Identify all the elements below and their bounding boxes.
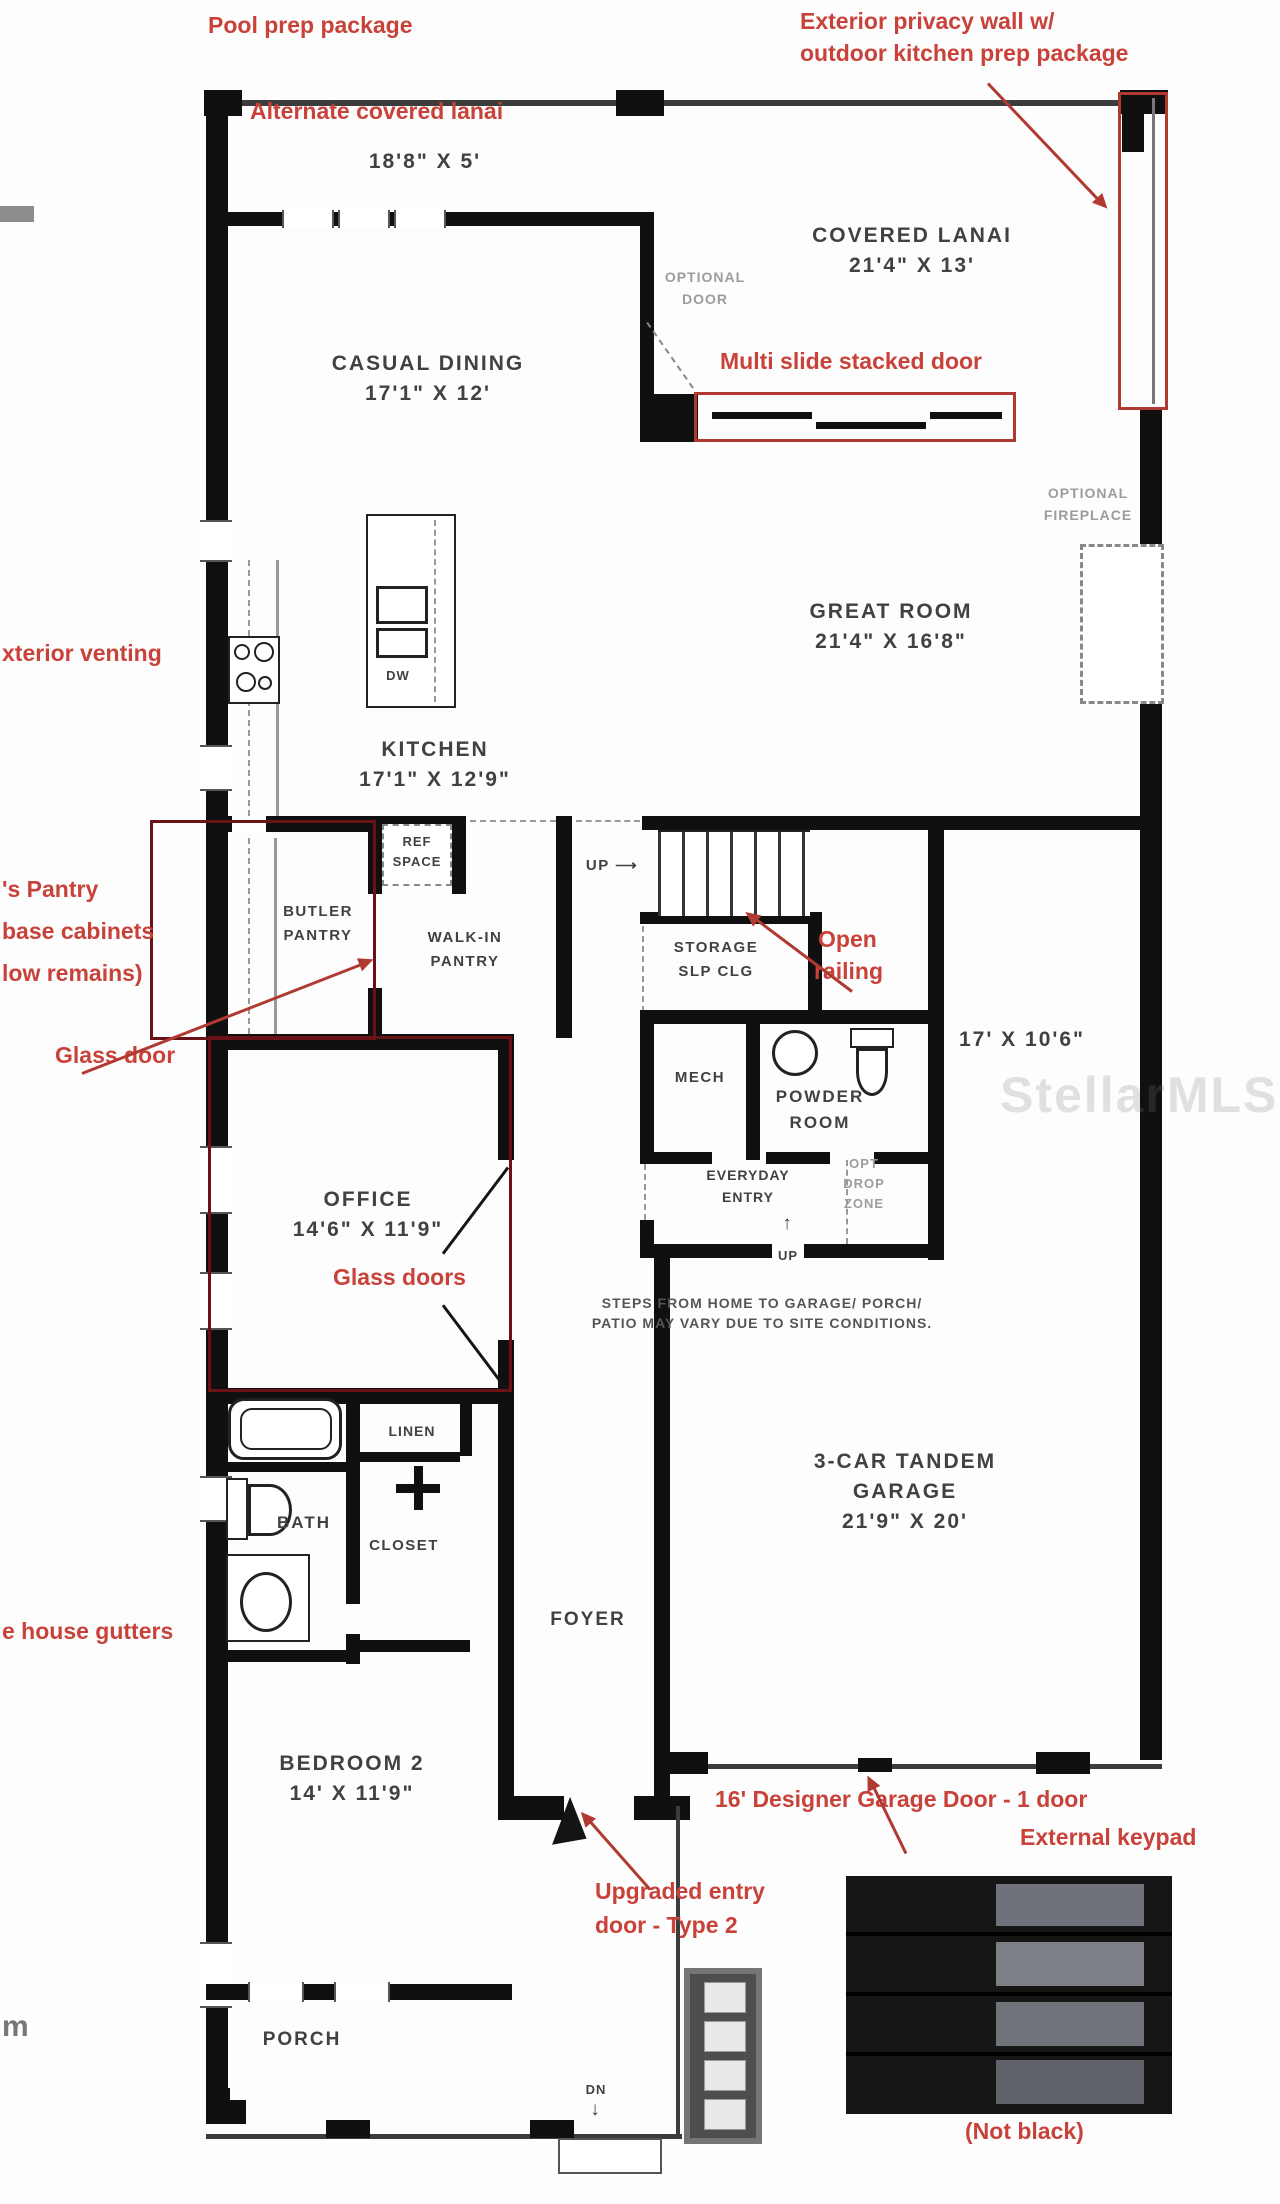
- wall: [804, 1244, 944, 1258]
- room-label-powder-1: POWDER: [776, 1086, 865, 1108]
- garage-window: [996, 1942, 1144, 1986]
- wall: [346, 1388, 360, 1604]
- entry-door-photo: [684, 1968, 762, 2144]
- wall: [654, 1250, 670, 1810]
- annotation-glass-door: Glass door: [55, 1042, 175, 1070]
- wall: [746, 1024, 760, 1160]
- wall: [206, 1650, 358, 1662]
- window: [200, 520, 232, 562]
- room-label-great-room: GREAT ROOM: [809, 598, 972, 625]
- wall: [642, 816, 942, 830]
- room-label-foyer: FOYER: [550, 1608, 625, 1633]
- room-dims-covered-lanai: 21'4" X 13': [849, 252, 975, 279]
- dn-arrow-icon: ↓: [590, 2098, 602, 2123]
- door-lite: [704, 2099, 746, 2130]
- room-label-closet: CLOSET: [369, 1536, 439, 1556]
- sink: [376, 628, 428, 658]
- powder-sink: [772, 1030, 818, 1076]
- label-optional-fireplace-2: FIREPLACE: [1044, 506, 1132, 524]
- room-label-mech: MECH: [675, 1068, 725, 1088]
- room-label-everyday-entry-1: EVERYDAY: [706, 1166, 789, 1184]
- grey-dash: [0, 206, 34, 222]
- closet-rod: [414, 1466, 423, 1510]
- room-label-butler-pantry-2: PANTRY: [284, 926, 353, 946]
- note-steps-1: STEPS FROM HOME TO GARAGE/ PORCH/: [602, 1294, 923, 1312]
- window: [248, 1982, 304, 2002]
- annotation-garage-door: 16' Designer Garage Door - 1 door: [715, 1786, 1087, 1814]
- room-label-everyday-entry-2: ENTRY: [722, 1188, 774, 1206]
- room-dims-alt-lanai: 18'8" X 5': [369, 148, 481, 175]
- bath-sink: [240, 1572, 292, 1632]
- room-dims-garage-bay: 17' X 10'6": [959, 1026, 1085, 1053]
- burner: [254, 642, 274, 662]
- label-dn: DN: [586, 2082, 607, 2099]
- room-label-porch: PORCH: [263, 2028, 342, 2053]
- annotation-not-black: (Not black): [965, 2118, 1084, 2146]
- room-dims-great-room: 21'4" X 16'8": [815, 628, 967, 655]
- window: [200, 745, 232, 791]
- annotation-corner-m: m: [2, 2010, 29, 2044]
- dashed-window: [644, 1164, 646, 1220]
- room-dims-bedroom2: 14' X 11'9": [290, 1780, 415, 1807]
- window: [338, 210, 390, 228]
- garage-door-photo: [846, 1876, 1172, 2114]
- annotation-alt-lanai: Alternate covered lanai: [250, 98, 503, 126]
- label-optional-door-1: OPTIONAL: [665, 268, 745, 286]
- room-label-bath: BATH: [277, 1512, 331, 1534]
- label-ref-space-2: SPACE: [393, 854, 442, 871]
- label-optional-door-2: DOOR: [682, 290, 728, 308]
- annotation-glass-doors: Glass doors: [333, 1264, 466, 1292]
- room-dims-casual-dining: 17'1" X 12': [365, 380, 491, 407]
- wall: [1152, 98, 1155, 404]
- room-label-storage-2: SLP CLG: [678, 962, 753, 982]
- room-dims-kitchen: 17'1" X 12'9": [359, 766, 511, 793]
- wall: [460, 1388, 472, 1456]
- burner: [258, 676, 272, 690]
- wall: [660, 1752, 708, 1774]
- wall: [326, 2120, 370, 2138]
- stairs: [658, 830, 810, 916]
- door-panel: [816, 422, 926, 429]
- wall: [1122, 96, 1144, 152]
- garage-window: [996, 1884, 1144, 1926]
- fireplace: [1080, 544, 1164, 704]
- burner: [236, 672, 256, 692]
- room-label-kitchen: KITCHEN: [381, 736, 488, 763]
- annotation-open-railing-1: Open: [818, 926, 877, 954]
- porch-step: [558, 2138, 662, 2174]
- garage-window: [996, 2002, 1144, 2046]
- label-ref-space-1: REF: [403, 834, 432, 851]
- wall: [640, 1010, 654, 1164]
- annotation-exterior-venting: xterior venting: [2, 640, 162, 668]
- island-dashed: [434, 520, 436, 702]
- wall: [640, 212, 654, 408]
- wall: [634, 1796, 690, 1820]
- panel-divider: [846, 1932, 1172, 1936]
- room-label-garage-2: GARAGE: [853, 1478, 957, 1505]
- label-optional-fireplace-1: OPTIONAL: [1048, 484, 1128, 502]
- annotation-privacy-wall-2: outdoor kitchen prep package: [800, 40, 1128, 68]
- room-dims-garage: 21'9" X 20': [842, 1508, 968, 1535]
- bathtub-inner: [240, 1408, 332, 1450]
- room-label-covered-lanai: COVERED LANAI: [812, 222, 1012, 249]
- office-highlight: [208, 1036, 512, 1392]
- window: [334, 1982, 390, 2002]
- wall: [530, 2120, 574, 2138]
- wall: [228, 1462, 346, 1472]
- wall: [1036, 1752, 1090, 1774]
- wall: [556, 816, 572, 1038]
- annotation-upgraded-entry-2: door - Type 2: [595, 1912, 738, 1940]
- room-label-powder-2: ROOM: [790, 1112, 851, 1134]
- room-label-walkin-pantry-2: PANTRY: [431, 952, 500, 972]
- label-opt-drop-zone-1: OPT: [849, 1156, 879, 1173]
- room-label-walkin-pantry-1: WALK-IN: [428, 928, 503, 948]
- wall: [206, 2088, 230, 2124]
- annotation-multi-slide: Multi slide stacked door: [720, 348, 982, 376]
- wall: [616, 90, 664, 116]
- label-up-entry: UP: [778, 1248, 798, 1265]
- sink: [376, 586, 428, 624]
- room-label-garage-1: 3-CAR TANDEM: [814, 1448, 996, 1475]
- annotation-upgraded-entry-1: Upgraded entry: [595, 1878, 765, 1906]
- door-lite: [704, 1982, 746, 2013]
- door-panel: [930, 412, 1002, 419]
- dashed-line: [642, 926, 644, 1012]
- up-arrow-icon: ↑: [782, 1212, 794, 1237]
- wall: [928, 830, 944, 1260]
- door-panel: [712, 412, 812, 419]
- wall: [640, 394, 698, 442]
- wall: [766, 1152, 830, 1164]
- window: [394, 210, 446, 228]
- wall: [640, 1010, 942, 1024]
- wall: [676, 1806, 680, 2136]
- annotation-external-keypad: External keypad: [1020, 1824, 1196, 1852]
- floor-plan: COVERED LANAI 21'4" X 13' 18'8" X 5' CAS…: [0, 0, 1280, 2204]
- label-opt-drop-zone-3: ZONE: [844, 1196, 884, 1213]
- annotation-pantry-cut-1: 's Pantry: [2, 876, 98, 904]
- dashed-line: [470, 820, 556, 822]
- annotation-house-gutters: e house gutters: [2, 1618, 173, 1646]
- label-up-stairs: UP ⟶: [586, 856, 638, 876]
- watermark: StellarMLS: [1000, 1066, 1278, 1124]
- room-label-storage-1: STORAGE: [674, 938, 758, 958]
- garage-window: [996, 2060, 1144, 2104]
- room-dims-office: 14'6" X 11'9": [293, 1216, 444, 1243]
- label-dw: DW: [386, 668, 410, 685]
- wall: [858, 1758, 892, 1772]
- annotation-privacy-wall-1: Exterior privacy wall w/: [800, 8, 1054, 36]
- wall: [640, 1152, 712, 1164]
- annotation-pantry-cut-3: low remains): [2, 960, 143, 988]
- toilet-tank: [850, 1028, 894, 1048]
- wall: [358, 1640, 470, 1652]
- room-label-butler-pantry-1: BUTLER: [283, 902, 353, 922]
- label-opt-drop-zone-2: DROP: [843, 1176, 885, 1193]
- wall: [942, 816, 1162, 830]
- room-label-bedroom2: BEDROOM 2: [279, 1750, 424, 1777]
- annotation-pool-prep: Pool prep package: [208, 12, 413, 40]
- window: [282, 210, 334, 228]
- wall: [360, 1452, 460, 1462]
- dashed-line: [576, 820, 640, 822]
- panel-divider: [846, 2052, 1172, 2056]
- room-label-linen: LINEN: [389, 1422, 436, 1440]
- wall: [452, 816, 466, 894]
- room-label-casual-dining: CASUAL DINING: [332, 350, 524, 377]
- room-label-office: OFFICE: [324, 1186, 413, 1213]
- burner: [234, 644, 250, 660]
- wall: [874, 1152, 944, 1164]
- door-lite: [704, 2021, 746, 2052]
- annotation-pantry-cut-2: base cabinets: [2, 918, 154, 946]
- panel-divider: [846, 1992, 1172, 1996]
- note-steps-2: PATIO MAY VARY DUE TO SITE CONDITIONS.: [592, 1314, 932, 1332]
- door-lite: [704, 2060, 746, 2091]
- toilet-tank: [226, 1478, 248, 1540]
